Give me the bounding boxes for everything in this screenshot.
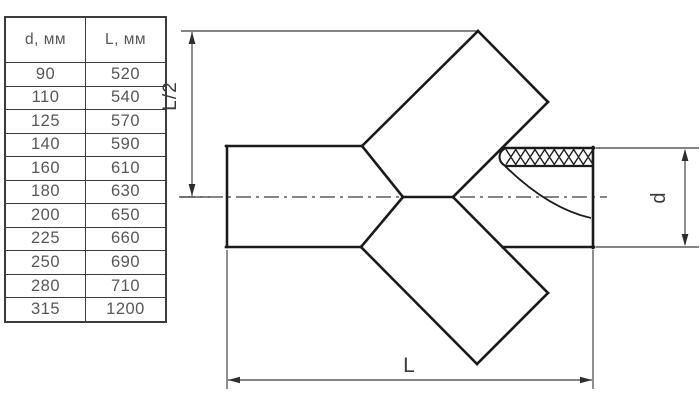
- upper-branch-end-cut: [478, 31, 548, 102]
- junction-line-lower-left: [361, 197, 403, 247]
- lower-branch-right-wall: [453, 197, 548, 293]
- arrow-down-diameter-icon: [682, 234, 689, 246]
- dim-label-diameter: d: [648, 192, 670, 203]
- fitting-drawing: L/2 L d: [0, 0, 700, 420]
- technical-drawing-page: d, мм L, мм 9052011054012557014059016061…: [0, 0, 700, 420]
- arrow-right-length-icon: [580, 377, 592, 383]
- arrow-up-diameter-icon: [682, 149, 689, 161]
- dim-label-half-length: L/2: [160, 81, 181, 110]
- arrow-up-halflength-icon: [189, 32, 196, 44]
- dim-label-length: L: [403, 354, 415, 377]
- junction-line-upper-left: [362, 146, 403, 197]
- seal-ring: [500, 148, 593, 218]
- socket-mouth-curve: [500, 161, 591, 218]
- upper-branch-left-wall: [362, 31, 478, 146]
- arrow-down-halflength-icon: [189, 184, 196, 196]
- seal-crosshatch: [506, 150, 593, 165]
- lower-branch-end-cut: [477, 293, 548, 364]
- arrow-left-length-icon: [228, 377, 240, 383]
- upper-branch-right-wall: [453, 102, 548, 197]
- lower-branch-left-wall: [361, 247, 477, 364]
